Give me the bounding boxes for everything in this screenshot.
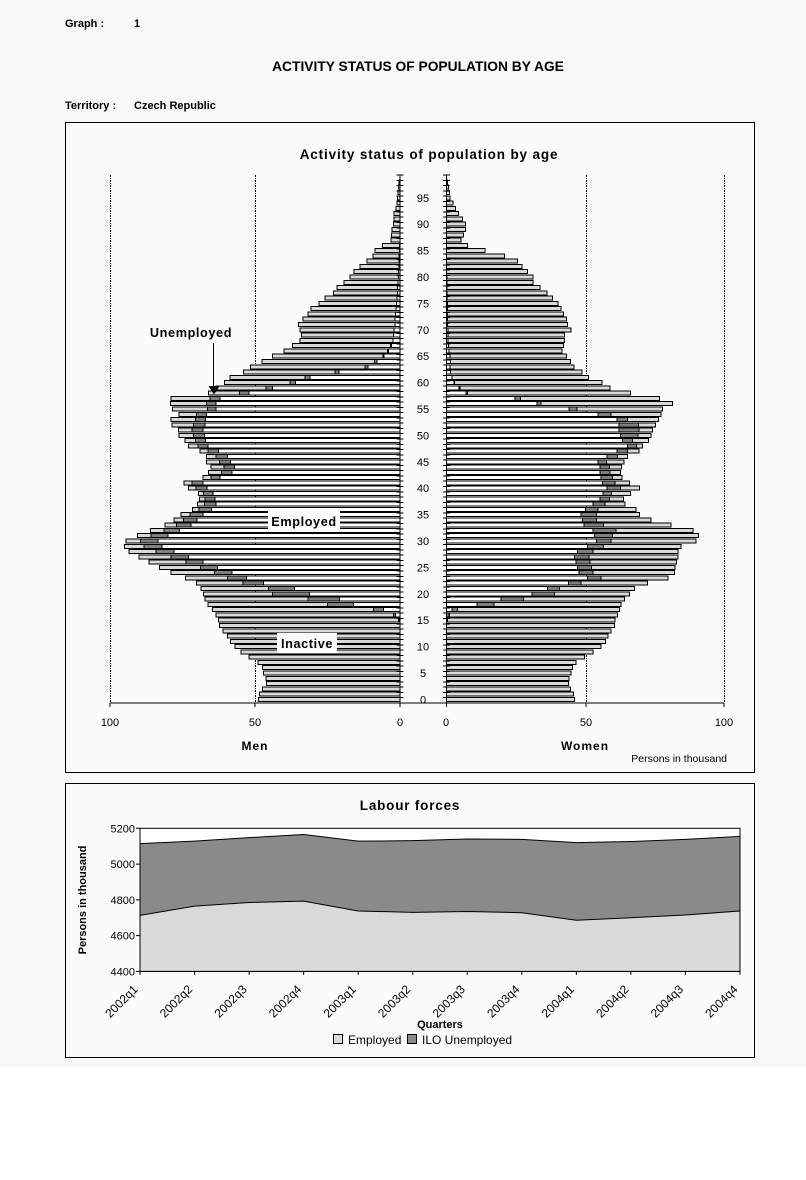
svg-text:Labour forces: Labour forces <box>360 798 460 813</box>
svg-text:70: 70 <box>417 325 429 337</box>
svg-text:Women: Women <box>561 739 609 753</box>
svg-text:Men: Men <box>242 739 269 753</box>
svg-text:ILO Unemployed: ILO Unemployed <box>422 1033 512 1047</box>
svg-text:50: 50 <box>417 430 429 442</box>
svg-text:60: 60 <box>417 378 429 390</box>
svg-text:Inactive: Inactive <box>281 637 333 651</box>
svg-text:40: 40 <box>417 483 429 495</box>
svg-text:4600: 4600 <box>111 931 135 943</box>
svg-text:50: 50 <box>580 717 592 729</box>
svg-text:80: 80 <box>417 272 429 284</box>
svg-text:0: 0 <box>443 717 449 729</box>
svg-text:Persons in thousand: Persons in thousand <box>631 753 727 765</box>
svg-text:4400: 4400 <box>111 966 135 978</box>
svg-text:10: 10 <box>417 642 429 654</box>
svg-text:5000: 5000 <box>111 859 135 871</box>
svg-text:100: 100 <box>101 717 119 729</box>
svg-text:25: 25 <box>417 562 429 574</box>
svg-text:15: 15 <box>417 615 429 627</box>
svg-text:Activity status of population: Activity status of population by age <box>300 147 559 162</box>
svg-text:Employed: Employed <box>271 515 336 529</box>
svg-text:Employed: Employed <box>348 1033 401 1047</box>
svg-text:30: 30 <box>417 536 429 548</box>
svg-text:50: 50 <box>249 717 261 729</box>
svg-text:Unemployed: Unemployed <box>150 326 232 340</box>
svg-text:95: 95 <box>417 193 429 205</box>
svg-text:0: 0 <box>397 717 403 729</box>
svg-text:55: 55 <box>417 404 429 416</box>
svg-text:45: 45 <box>417 457 429 469</box>
svg-text:65: 65 <box>417 351 429 363</box>
svg-text:90: 90 <box>417 219 429 231</box>
svg-text:35: 35 <box>417 510 429 522</box>
svg-text:20: 20 <box>417 589 429 601</box>
svg-text:75: 75 <box>417 298 429 310</box>
svg-text:0: 0 <box>420 694 426 706</box>
svg-text:Persons in thousand: Persons in thousand <box>77 846 89 955</box>
svg-text:5200: 5200 <box>111 823 135 835</box>
svg-text:Quarters: Quarters <box>417 1019 463 1031</box>
svg-text:100: 100 <box>715 717 733 729</box>
svg-text:85: 85 <box>417 246 429 258</box>
svg-text:5: 5 <box>420 668 426 680</box>
svg-text:4800: 4800 <box>111 895 135 907</box>
